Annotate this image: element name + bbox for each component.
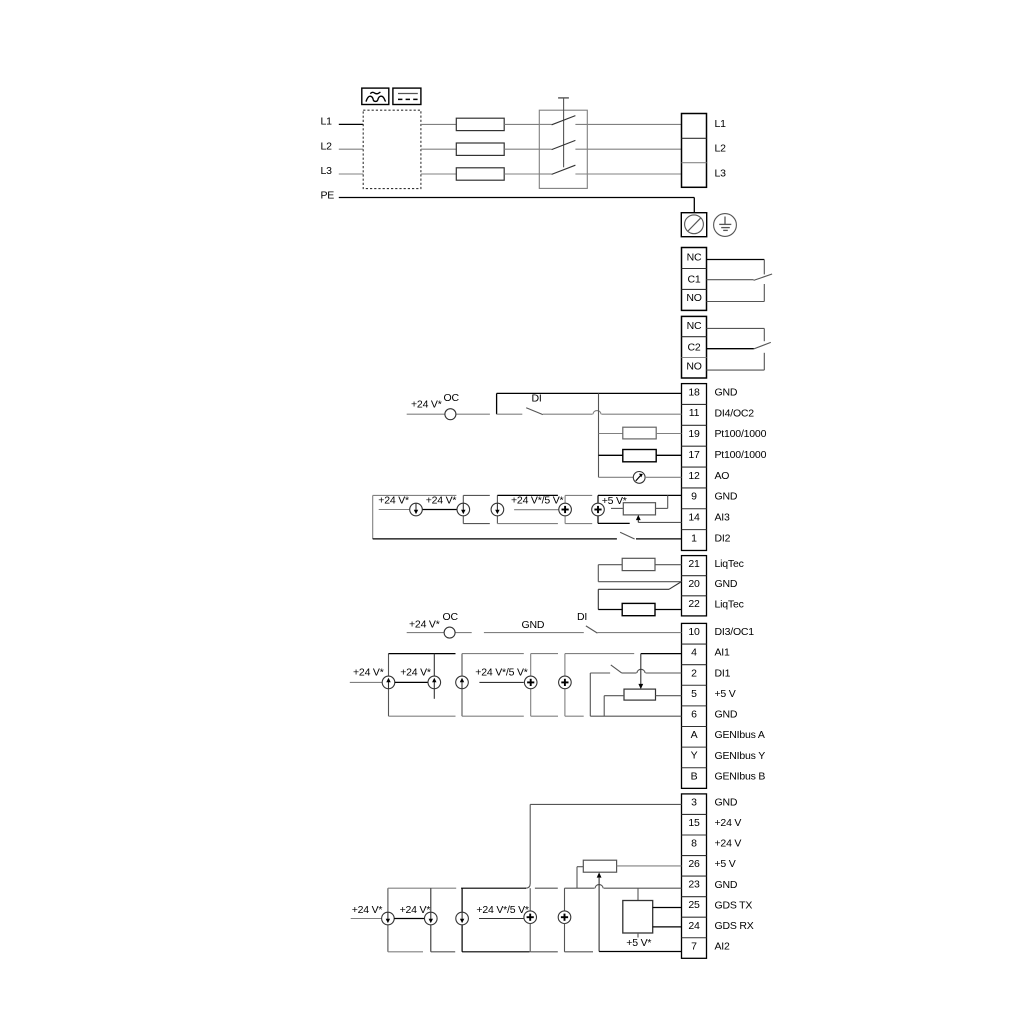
svg-text:26: 26	[688, 858, 700, 870]
svg-text:23: 23	[688, 879, 700, 891]
svg-text:+24 V: +24 V	[715, 838, 742, 850]
svg-text:GENIbus Y: GENIbus Y	[715, 750, 766, 762]
svg-text:10: 10	[688, 626, 700, 638]
svg-text:11: 11	[689, 407, 700, 419]
svg-text:NO: NO	[686, 292, 701, 304]
svg-text:GDS TX: GDS TX	[715, 899, 753, 911]
svg-text:3: 3	[691, 796, 697, 808]
svg-text:Pt100/1000: Pt100/1000	[715, 449, 767, 461]
svg-text:B: B	[691, 770, 698, 782]
svg-text:LiqTec: LiqTec	[715, 558, 744, 570]
svg-text:+24 V*: +24 V*	[409, 619, 440, 631]
svg-text:OC: OC	[443, 611, 459, 623]
svg-text:25: 25	[688, 899, 700, 911]
svg-text:21: 21	[688, 558, 700, 570]
svg-text:2: 2	[691, 667, 697, 679]
svg-text:C2: C2	[687, 341, 700, 353]
svg-text:C1: C1	[687, 273, 700, 285]
svg-text:GENIbus A: GENIbus A	[715, 729, 765, 741]
svg-text:20: 20	[688, 578, 700, 590]
svg-text:AI2: AI2	[715, 940, 731, 952]
svg-text:+24 V*: +24 V*	[378, 494, 409, 506]
svg-text:GDS RX: GDS RX	[715, 920, 754, 932]
svg-text:L3: L3	[715, 167, 727, 179]
svg-text:6: 6	[691, 708, 697, 720]
svg-text:+24 V*/5 V*: +24 V*/5 V*	[511, 494, 563, 506]
svg-text:18: 18	[688, 386, 700, 398]
svg-text:GND: GND	[715, 491, 738, 503]
svg-text:L2: L2	[715, 143, 727, 155]
svg-text:GND: GND	[715, 578, 738, 590]
svg-text:GND: GND	[715, 386, 738, 398]
svg-text:GND: GND	[522, 619, 545, 631]
svg-text:PE: PE	[321, 190, 335, 202]
svg-text:+24 V*: +24 V*	[400, 667, 431, 679]
svg-text:L3: L3	[321, 165, 333, 177]
svg-text:+24 V*/5 V*: +24 V*/5 V*	[476, 904, 528, 916]
svg-text:+5 V: +5 V	[715, 688, 736, 700]
svg-text:NO: NO	[686, 361, 701, 373]
svg-text:OC: OC	[444, 392, 460, 404]
svg-text:15: 15	[688, 817, 700, 829]
svg-text:4: 4	[691, 647, 697, 659]
svg-text:Pt100/1000: Pt100/1000	[715, 428, 767, 440]
svg-text:GND: GND	[715, 879, 738, 891]
svg-text:8: 8	[691, 838, 697, 850]
svg-text:+5 V*: +5 V*	[626, 937, 651, 949]
svg-text:12: 12	[688, 470, 700, 482]
svg-text:22: 22	[688, 598, 700, 610]
svg-text:19: 19	[688, 428, 700, 440]
svg-text:7: 7	[691, 940, 697, 952]
svg-text:Y: Y	[691, 750, 698, 762]
svg-text:AI1: AI1	[715, 647, 731, 659]
svg-text:+24 V*: +24 V*	[426, 494, 457, 506]
svg-text:NC: NC	[687, 252, 702, 264]
svg-text:DI2: DI2	[715, 532, 731, 544]
svg-text:NC: NC	[687, 320, 702, 332]
svg-text:9: 9	[691, 491, 697, 503]
svg-text:LiqTec: LiqTec	[715, 598, 744, 610]
svg-text:+24 V*/5 V*: +24 V*/5 V*	[475, 667, 527, 679]
svg-text:+24 V*: +24 V*	[353, 667, 384, 679]
svg-text:DI: DI	[532, 393, 542, 405]
svg-text:L1: L1	[321, 116, 333, 128]
svg-text:DI: DI	[577, 611, 587, 623]
svg-text:AO: AO	[715, 470, 730, 482]
svg-text:DI4/OC2: DI4/OC2	[715, 407, 755, 419]
svg-text:1: 1	[691, 532, 697, 544]
svg-text:L2: L2	[321, 140, 333, 152]
svg-text:DI3/OC1: DI3/OC1	[715, 626, 755, 638]
svg-text:L1: L1	[715, 118, 727, 130]
svg-text:+24 V: +24 V	[715, 817, 742, 829]
svg-text:+24 V*: +24 V*	[352, 904, 383, 916]
svg-text:+24 V*: +24 V*	[411, 399, 442, 411]
svg-text:A: A	[691, 729, 698, 741]
svg-text:DI1: DI1	[715, 667, 731, 679]
svg-text:GND: GND	[715, 709, 738, 721]
svg-text:14: 14	[688, 511, 700, 523]
svg-text:24: 24	[688, 920, 700, 932]
svg-text:GENIbus B: GENIbus B	[715, 770, 766, 782]
svg-text:AI3: AI3	[715, 512, 731, 524]
svg-text:5: 5	[691, 688, 697, 700]
svg-text:+5 V: +5 V	[715, 858, 736, 870]
svg-text:GND: GND	[715, 797, 738, 809]
svg-text:17: 17	[688, 449, 700, 461]
